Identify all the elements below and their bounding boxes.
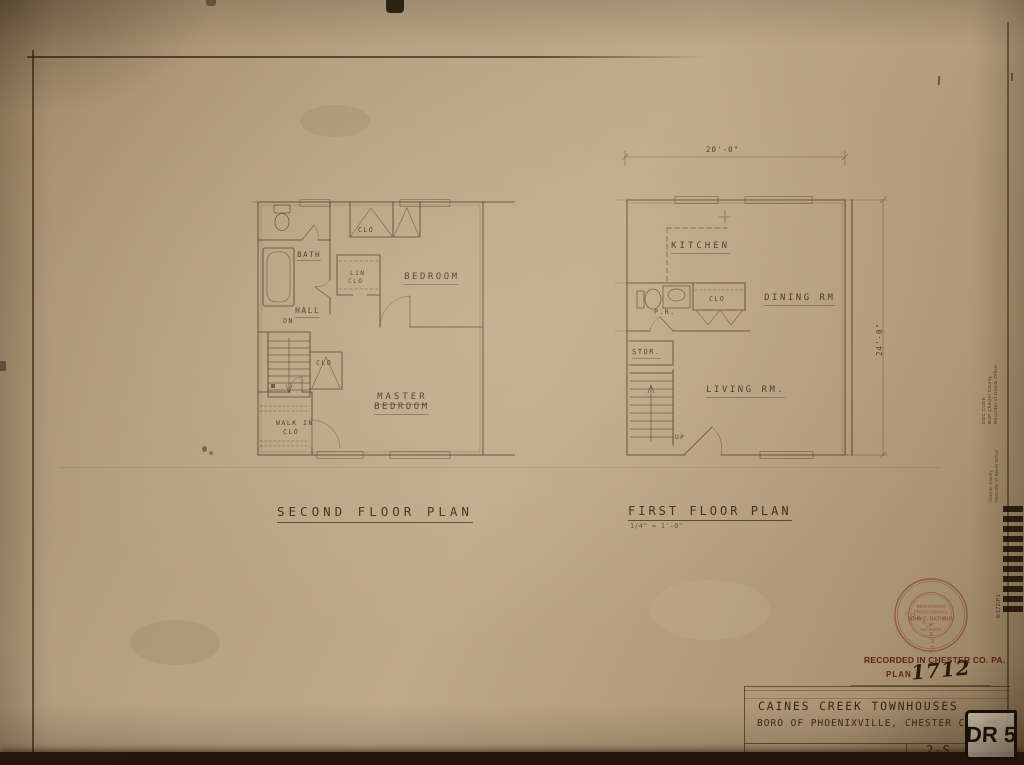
powder-room-band: [627, 283, 750, 331]
titleblock-line-top: [744, 686, 1010, 687]
scanned-blueprint-photo: BATH CLO BEDROOM LIN CLO HALL DN CLO MAS…: [0, 0, 1024, 765]
edge-recorder-stamp: DOC CODE BOP Chester County Recorder of …: [981, 328, 1001, 424]
storage-closet: [629, 341, 673, 365]
first-floor-plan-scale: 1/4" = 1'-0": [630, 523, 683, 530]
second-windows: [300, 200, 450, 459]
first-floor-plan-title: FIRST FLOOR PLAN: [628, 505, 792, 521]
toilet-fixture: [274, 205, 290, 231]
crease-line: [60, 467, 940, 468]
blueprint-sheet: BATH CLO BEDROOM LIN CLO HALL DN CLO MAS…: [0, 0, 1024, 765]
paper-smudge: [650, 580, 770, 640]
titleblock-project: CAINES CREEK TOWNHOUSES: [758, 701, 959, 713]
seal-name: JOHN C. RATHBUN: [908, 617, 954, 623]
second-mid-closet: [310, 352, 342, 389]
stain-dot: [202, 446, 207, 452]
sheet-border-right: [1007, 22, 1009, 755]
second-closets: [337, 202, 420, 295]
stain-dot: [209, 451, 213, 455]
seal-line-1: REGISTERED: [917, 604, 946, 609]
scan-bottom-edge: [0, 752, 1024, 765]
first-windows: [675, 197, 813, 459]
dr5-stamp: DR 5: [965, 710, 1017, 760]
edge-stamp-line: Recorder of Deeds Office: [994, 442, 1000, 502]
entry-door: [685, 427, 722, 454]
sheet-border-top: [27, 56, 707, 58]
edge-dash: [938, 76, 940, 85]
professional-seal: COMMONWEALTH OF PENNSYLVANIA REGISTERED …: [893, 577, 969, 653]
first-stairs: [630, 370, 673, 445]
top-clip-tab-small: [206, 0, 216, 6]
barcode-caption: 8/172/P1: [996, 548, 1002, 618]
seal-line-2: PROFESSIONAL: [914, 610, 949, 615]
kitchen-counters: [667, 211, 731, 282]
seal-number: No. 10201: [920, 627, 942, 632]
paper-smudge: [130, 620, 220, 665]
paper-smudge: [300, 105, 370, 137]
plan-number-handwritten: 1712: [910, 655, 972, 684]
first-dimension-lines: [622, 151, 887, 458]
titleblock-left-edge: [744, 686, 745, 756]
top-clip-tab: [386, 0, 404, 13]
edge-dash: [1011, 73, 1013, 81]
edge-stamp-line: Recorder of Deeds Office: [993, 328, 999, 424]
left-edge-dash: [0, 361, 6, 371]
edge-recorder-stamp-2: Chester County Recorder of Deeds Office: [988, 442, 1001, 502]
titleblock-line-top2: [744, 690, 1010, 691]
first-outer-walls: [615, 200, 852, 455]
bathtub-fixture: [263, 248, 294, 306]
second-floor-plan-title: SECOND FLOOR PLAN: [277, 506, 473, 523]
barcode: [1003, 506, 1023, 614]
second-floor-plan-drawing: [250, 192, 520, 467]
dr5-stamp-text: DR 5: [965, 722, 1016, 748]
first-floor-plan-drawing: [615, 145, 905, 465]
recorded-plan-label: PLAN: [886, 670, 912, 679]
titleblock-location: BORO OF PHOENIXVILLE, CHESTER CO. PA: [757, 719, 999, 729]
second-bedroom-wall: [380, 295, 483, 327]
sheet-border-left: [32, 50, 34, 755]
